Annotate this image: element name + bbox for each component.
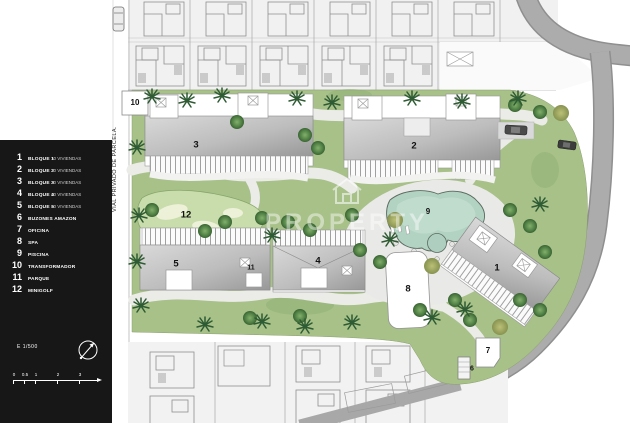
legend-item-number: 4	[7, 188, 22, 198]
legend-item: 12MINIGOLF	[0, 284, 112, 296]
legend-item: 5BLOQUE 510 VIVIENDAS	[0, 200, 112, 212]
building-2	[344, 94, 500, 181]
marker-block-5: 5	[173, 259, 178, 269]
scale-bar-line	[13, 380, 99, 381]
legend-item: 9PISCINA	[0, 248, 112, 260]
marker-block-4: 4	[315, 256, 320, 266]
legend-item-detail: 10 VIVIENDAS	[51, 192, 81, 197]
legend-item-name: MINIGOLF	[28, 289, 51, 294]
legend-item-name: BUZONES AMAZON	[28, 217, 51, 222]
legend-item-name: PARQUE	[28, 277, 51, 282]
legend-item: 11PARQUE	[0, 272, 112, 284]
north-arrow-icon	[72, 336, 102, 366]
legend-item: 7OFICINA	[0, 224, 112, 236]
legend-item-number: 11	[7, 272, 22, 282]
legend-item: 3BLOQUE 320 VIVIENDAS	[0, 176, 112, 188]
legend-item-detail: 10 VIVIENDAS	[51, 204, 81, 209]
legend-item-name: SPA	[28, 241, 51, 246]
scale-bar: 0 0.5 1 2 3	[13, 372, 101, 386]
legend-item-name: BLOQUE 1	[28, 157, 51, 162]
scale-label: E 1/500	[17, 344, 38, 350]
legend-item-number: 7	[7, 224, 22, 234]
marker-park: 11	[247, 265, 254, 272]
legend-item-detail: 20 VIVIENDAS	[51, 168, 81, 173]
legend-item-number: 2	[7, 164, 22, 174]
building-3	[145, 93, 313, 178]
scale-tick-label: 0.5	[22, 372, 28, 377]
legend-item-name: BLOQUE 3	[28, 181, 51, 186]
amazon-lockers	[458, 357, 470, 379]
legend-item-name: PISCINA	[28, 253, 51, 258]
legend-panel: 1BLOQUE 110 VIVIENDAS 2BLOQUE 220 VIVIEN…	[0, 140, 112, 423]
legend-item-number: 3	[7, 176, 22, 186]
scale-tick-label: 3	[79, 372, 82, 377]
legend-item-number: 10	[7, 260, 22, 270]
legend-item-detail: 10 VIVIENDAS	[51, 156, 81, 161]
car-icon	[113, 7, 124, 31]
legend-item: 10TRANSFORMADOR	[0, 260, 112, 272]
legend-item-name: TRANSFORMADOR	[28, 265, 51, 270]
marker-block-3: 3	[193, 140, 198, 150]
legend-item: 2BLOQUE 220 VIVIENDAS	[0, 164, 112, 176]
scale-tick-label: 1	[35, 372, 38, 377]
scale-tick-label: 0	[13, 372, 16, 377]
street-label: VIAL PRIVADO DE PARCELA.	[112, 200, 124, 338]
marker-office: 7	[486, 347, 490, 355]
legend-item-number: 8	[7, 236, 22, 246]
marker-block-2: 2	[411, 141, 416, 151]
legend-item-number: 6	[7, 212, 22, 222]
marker-pool: 9	[426, 208, 430, 216]
marker-block-1: 1	[494, 263, 499, 273]
legend-item-number: 1	[7, 152, 22, 162]
scale-tick-label: 2	[57, 372, 60, 377]
scale-bar-arrow	[97, 378, 102, 382]
legend-item: 4BLOQUE 410 VIVIENDAS	[0, 188, 112, 200]
marker-spa: 8	[405, 284, 410, 294]
legend-list: 1BLOQUE 110 VIVIENDAS 2BLOQUE 220 VIVIEN…	[0, 152, 112, 296]
legend-item-name: BLOQUE 5	[28, 205, 51, 210]
legend-item: 1BLOQUE 110 VIVIENDAS	[0, 152, 112, 164]
marker-minigolf: 12	[181, 210, 192, 220]
legend-item-name: OFICINA	[28, 229, 51, 234]
marker-transformer: 10	[131, 99, 140, 107]
legend-item-number: 9	[7, 248, 22, 258]
legend-item: 6BUZONES AMAZON	[0, 212, 112, 224]
site-plan-page: PROPERTY 1 2 3 4 5 6 7 8 9 10 11 12 VIAL…	[0, 0, 630, 423]
legend-item-number: 5	[7, 200, 22, 210]
marker-mailboxes: 6	[470, 366, 474, 373]
legend-item-name: BLOQUE 2	[28, 169, 51, 174]
legend-item-number: 12	[7, 284, 22, 294]
legend-item-name: BLOQUE 4	[28, 193, 51, 198]
legend-item-detail: 20 VIVIENDAS	[51, 180, 81, 185]
legend-item: 8SPA	[0, 236, 112, 248]
